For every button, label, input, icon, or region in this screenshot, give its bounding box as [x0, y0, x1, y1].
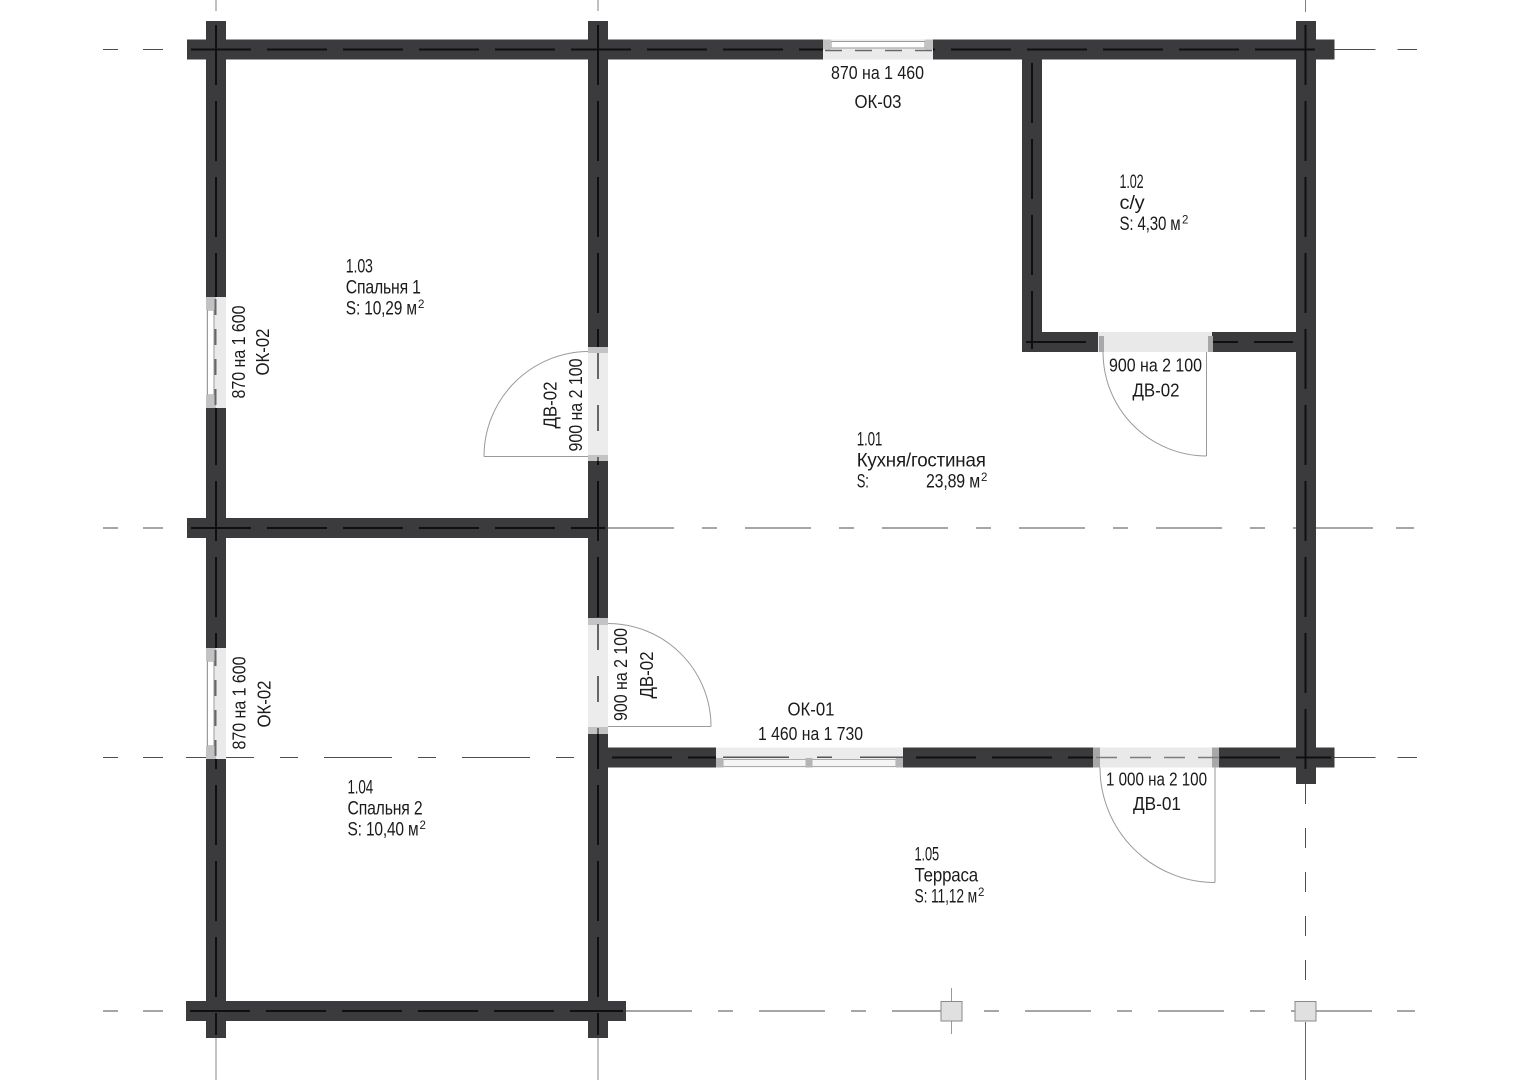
- svg-text:2: 2: [981, 472, 987, 484]
- svg-text:1.03: 1.03: [346, 256, 373, 278]
- svg-text:ОК-02: ОК-02: [253, 329, 273, 376]
- svg-text:S: 10,29 м: S: 10,29 м: [346, 298, 417, 320]
- svg-text:Спальня 1: Спальня 1: [346, 277, 421, 299]
- svg-text:S: 10,40 м: S: 10,40 м: [348, 819, 419, 841]
- svg-text:1.04: 1.04: [348, 777, 374, 799]
- svg-text:1.01: 1.01: [857, 429, 883, 451]
- svg-text:с/у: с/у: [1120, 192, 1145, 214]
- svg-text:2: 2: [420, 820, 426, 832]
- svg-text:ОК-03: ОК-03: [855, 92, 902, 112]
- svg-text:2: 2: [418, 299, 424, 311]
- svg-text:1.02: 1.02: [1120, 171, 1144, 193]
- svg-text:2: 2: [978, 887, 984, 899]
- svg-text:900 на 2 100: 900 на 2 100: [1109, 356, 1202, 376]
- svg-text:2: 2: [1182, 215, 1188, 227]
- svg-text:ОК-02: ОК-02: [255, 681, 275, 728]
- svg-text:1.05: 1.05: [915, 844, 940, 866]
- svg-text:1 460 на 1 730: 1 460 на 1 730: [758, 724, 863, 744]
- svg-text:ДВ-01: ДВ-01: [1133, 794, 1181, 814]
- svg-text:Терраса: Терраса: [915, 865, 979, 887]
- svg-text:870 на 1 460: 870 на 1 460: [831, 63, 924, 83]
- svg-text:ДВ-02: ДВ-02: [540, 382, 560, 429]
- svg-text:ДВ-02: ДВ-02: [637, 652, 657, 699]
- svg-text:S: 11,12 м: S: 11,12 м: [915, 886, 978, 908]
- svg-text:23,89 м: 23,89 м: [926, 471, 980, 493]
- svg-text:900 на 2 100: 900 на 2 100: [611, 628, 631, 721]
- svg-text:S:: S:: [857, 471, 869, 493]
- svg-text:S: 4,30 м: S: 4,30 м: [1120, 213, 1181, 235]
- svg-text:900 на 2 100: 900 на 2 100: [566, 359, 586, 452]
- svg-text:ОК-01: ОК-01: [788, 700, 835, 720]
- svg-text:1 000 на 2 100: 1 000 на 2 100: [1106, 770, 1207, 790]
- svg-text:ДВ-02: ДВ-02: [1133, 381, 1180, 401]
- svg-text:Спальня 2: Спальня 2: [348, 798, 423, 820]
- svg-text:870 на 1 600: 870 на 1 600: [229, 306, 249, 399]
- svg-text:870 на 1 600: 870 на 1 600: [230, 657, 250, 750]
- svg-text:Кухня/гостиная: Кухня/гостиная: [857, 450, 986, 472]
